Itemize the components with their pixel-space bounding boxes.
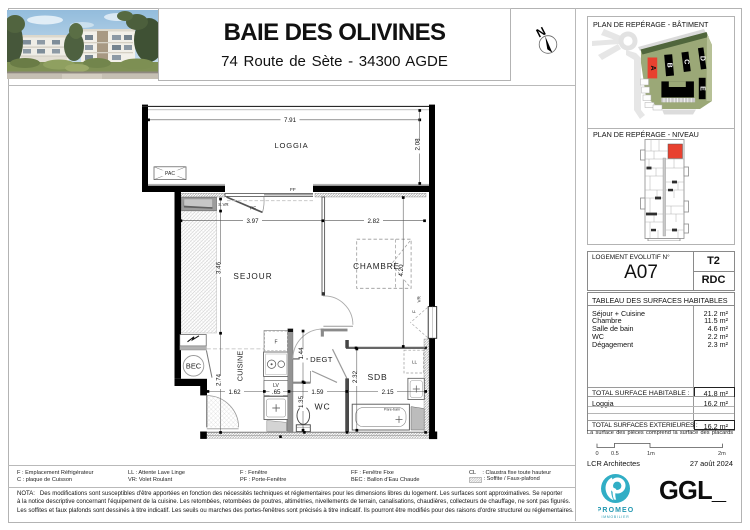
svg-text:IMMOBILIER: IMMOBILIER	[602, 515, 630, 519]
svg-text:7.91: 7.91	[284, 117, 297, 124]
svg-text:2m: 2m	[718, 451, 726, 456]
svg-text:PF: PF	[250, 206, 256, 212]
svg-text:CHAMBRE: CHAMBRE	[353, 262, 400, 271]
svg-text:2.08: 2.08	[415, 138, 422, 151]
svg-text:0: 0	[596, 451, 599, 456]
svg-text:2.74: 2.74	[216, 373, 223, 386]
svg-text:1m: 1m	[647, 451, 655, 456]
svg-text:PAC: PAC	[165, 171, 175, 177]
svg-text:A: A	[649, 65, 656, 70]
svg-text:E: E	[699, 86, 706, 91]
svg-text:2.32: 2.32	[352, 370, 359, 383]
svg-text:SEJOUR: SEJOUR	[233, 272, 272, 281]
svg-text:SDB: SDB	[367, 372, 387, 382]
svg-text:2.15: 2.15	[382, 389, 395, 396]
svg-text:F: F	[411, 310, 416, 313]
svg-text:1.44: 1.44	[298, 347, 305, 360]
svg-text:LL: LL	[412, 360, 418, 365]
svg-text:B: B	[666, 63, 673, 68]
svg-text:PROMEO: PROMEO	[598, 507, 634, 514]
svg-text:LOGGIA: LOGGIA	[275, 141, 309, 150]
svg-text:1.59: 1.59	[311, 389, 324, 396]
svg-text:FF: FF	[290, 187, 296, 193]
svg-text:BEC: BEC	[186, 362, 202, 371]
svg-text:1.62: 1.62	[228, 389, 241, 396]
svg-text:3.46: 3.46	[216, 261, 223, 274]
svg-text:VR: VR	[417, 295, 422, 302]
svg-text:C: C	[683, 59, 690, 64]
svg-text:1.35: 1.35	[298, 395, 305, 408]
svg-text:0.5: 0.5	[611, 451, 619, 456]
svg-text:.65: .65	[272, 389, 281, 396]
svg-text:3.97: 3.97	[246, 218, 259, 225]
svg-text:D: D	[699, 56, 706, 61]
svg-text:Pare-bain: Pare-bain	[384, 408, 400, 412]
svg-text:CUISINE: CUISINE	[236, 351, 245, 382]
svg-text:DEGT: DEGT	[310, 355, 333, 364]
svg-text:2.82: 2.82	[367, 218, 380, 225]
svg-text:F: F	[274, 340, 277, 346]
svg-text:S.VR: S.VR	[218, 202, 228, 207]
svg-text:WC: WC	[315, 401, 331, 411]
